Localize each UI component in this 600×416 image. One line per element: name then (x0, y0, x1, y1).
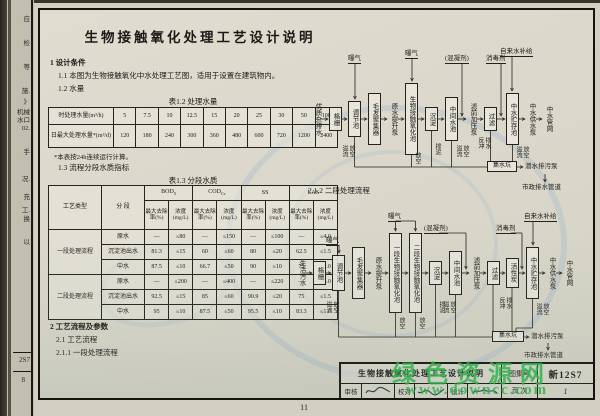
text-fragment: 机械 (17, 109, 30, 116)
tap-water-makeup-label: 自来水补给 (524, 213, 557, 222)
cell: ≤10 (265, 260, 289, 275)
cell: ≤10 (169, 260, 193, 275)
overflow-drain-label: 溢流放空 (324, 301, 338, 316)
text-fragment: 02. (22, 125, 30, 132)
photo-left-edge (0, 0, 7, 416)
stage-cell: 原水 (102, 230, 145, 245)
tap-water-makeup-label: 自来水补给 (500, 48, 533, 57)
cell: ≤150 (217, 230, 241, 245)
cell: 5 (114, 108, 136, 125)
adjacent-page-border (31, 0, 33, 416)
cell: 30 (270, 108, 292, 125)
flow-diagram-two-stage: 2.1.2 二段处理流程 (296, 185, 592, 365)
section-2-heading: 2 工艺流程及参数 (50, 322, 108, 331)
review-signature (361, 384, 394, 398)
disinfectant-label: 消毒剂 (496, 225, 516, 234)
cell: ≤20 (265, 245, 289, 260)
cell: ≤15 (169, 290, 193, 305)
flow-box-intermediate-tank: 中间水池 (449, 251, 462, 295)
table-processing-capacity: 时处理水量(m³/h) 5 7.5 10 12.5 15 20 25 30 50… (48, 107, 338, 148)
book-spine (8, 0, 11, 416)
flow-box-hair-collector: 毛发聚集器 (352, 247, 365, 299)
text-fragment: 》 (24, 99, 31, 106)
header-cell: BOD5 (145, 186, 193, 201)
cell: 85 (193, 290, 217, 305)
cell: — (193, 275, 217, 290)
cell: ≤20 (265, 290, 289, 305)
flow-box-bio-oxidation-stage1: 一段生物接触氧化池 (389, 233, 402, 313)
header-cell: 最大去除率(%) (241, 201, 265, 230)
cell: 66.7 (193, 260, 217, 275)
flow-label-supply-pump: 中水供水泵 (546, 248, 556, 298)
section-1-1-text: 1.1 本图为生物接触氧化中水处理工艺图，适用于设置在建筑物内。 (58, 71, 279, 80)
row-label: 时处理水量(m³/h) (49, 108, 114, 125)
flow-box-filter: 过滤 (487, 261, 500, 285)
flow-box-screen: 格栅 (329, 107, 342, 131)
text-fragment: 检 (24, 40, 31, 47)
backwash-label: 反冲排水 (497, 297, 511, 312)
process-type-cell: 二段处理流程 (49, 275, 102, 320)
section-1-3-heading: 1.3 流程分段水质指标 (58, 163, 129, 172)
header-cell: 最大去除率(%) (193, 201, 217, 230)
flow-label-pipe-network: 中水管网 (563, 253, 573, 293)
scanned-page-photo: 应 检 等 施. 》 机械 水口 02. 手 况. 充 工. 换 以 2S7 8… (0, 0, 600, 416)
flow-box-intermediate-tank: 中间水池 (445, 97, 458, 141)
stage-cell: 中水 (102, 260, 145, 275)
cell: ≤400 (217, 275, 241, 290)
sump-pit-box: 集水坑 (492, 331, 524, 342)
cell: — (145, 275, 169, 290)
cell: ≤15 (169, 245, 193, 260)
header-cell: 工艺类型 (49, 186, 102, 230)
review-label: 审核 (341, 384, 361, 398)
flow-box-reclaimed-storage: 中水贮存池 (506, 93, 519, 145)
scan-page-number: 11 (300, 402, 308, 412)
flow-box-regulating-tank: 调节池 (332, 255, 345, 291)
aeration-label: 曝气 (405, 50, 418, 59)
text-fragment: 施. (22, 88, 30, 95)
cell: 360 (203, 125, 225, 148)
flow-label-raw-water-pump: 原水提升泵 (372, 248, 382, 298)
text-fragment: 应 (24, 16, 31, 23)
flow-label-supply-pump: 中水供水泵 (526, 94, 536, 144)
flow-box-sedimentation: 沉淀 (429, 261, 442, 285)
cell: ≤220 (265, 275, 289, 290)
cell: ≤50 (217, 305, 241, 320)
table-row: 一段处理流程 原水 — ≤80 — ≤150 — ≤100 — ≤4.0 (49, 230, 338, 245)
sump-pit-box: 集水坑 (487, 161, 517, 172)
adjacent-titleblock-line (13, 352, 33, 353)
cell: 87.5 (145, 260, 169, 275)
flow-box-screen: 格栅 (313, 261, 326, 285)
cell: 87.5 (193, 305, 217, 320)
flow-source-label: 生活污水 (296, 245, 306, 301)
drain-label: 放空 (397, 317, 404, 329)
cell: ≤200 (169, 275, 193, 290)
cell: ≤10 (265, 305, 289, 320)
cell: 25 (248, 108, 270, 125)
text-fragment: 况. (22, 176, 30, 183)
coagulant-label: (混凝剂) (445, 55, 469, 64)
cell: 60 (193, 245, 217, 260)
header-cell: SS (241, 186, 289, 201)
table-row: 二段处理流程 原水 — ≤200 — ≤400 — ≤220 — ≤6.0 (49, 275, 338, 290)
cell: 480 (225, 125, 247, 148)
overflow-drain-label: 溢流放空 (441, 301, 455, 316)
table-header-row: 工艺类型 分 段 BOD5 CODCr SS LAS (49, 186, 338, 201)
cell: ≤60 (217, 290, 241, 305)
cell: 95 (145, 305, 169, 320)
flow-box-reclaimed-storage: 中水贮存池 (526, 247, 539, 299)
cell: ≤100 (265, 230, 289, 245)
aeration-label: 曝气 (388, 213, 401, 222)
sewage-pump-label: 潜水排污泵 (525, 163, 558, 171)
sewage-pump-label: 潜水排污泵 (531, 333, 564, 341)
cell: ≤50 (217, 260, 241, 275)
table12-footnote: *本表按24h连续运行计算。 (54, 151, 132, 161)
row-label: 日最大处理水量*(m³/d) (49, 125, 114, 148)
adjacent-page-strip: 应 检 等 施. 》 机械 水口 02. 手 况. 充 工. 换 以 2S7 8 (7, 0, 34, 416)
text-fragment: 工. (22, 207, 30, 214)
page-title: 生物接触氧化处理工艺设计说明 (50, 26, 350, 46)
table-row: 时处理水量(m³/h) 5 7.5 10 12.5 15 20 25 30 50… (49, 108, 338, 125)
cell: 300 (181, 125, 203, 148)
section-2-1-1-heading: 2.1.1 一段处理流程 (56, 348, 118, 357)
cell: — (145, 230, 169, 245)
drain-label: 放空 (417, 317, 424, 329)
drawing-sheet: 生物接触氧化处理工艺设计说明 1 设计条件 1.1 本图为生物接触氧化中水处理工… (38, 8, 595, 400)
header-cell: 浓度(mg/L) (169, 201, 193, 230)
section-1-2-heading: 1.2 水量 (58, 84, 84, 93)
stage-cell: 沉淀池出水 (102, 290, 145, 305)
process-type-cell: 一段处理流程 (49, 230, 102, 275)
backwash-label: 反冲排水 (476, 137, 490, 152)
cell: — (241, 230, 265, 245)
adjacent-page-no: 8 (22, 377, 26, 384)
section-1-heading: 1 设计条件 (50, 58, 86, 67)
cell: 20 (225, 108, 247, 125)
cell: 720 (270, 125, 292, 148)
site-watermark-url: www.downcc.com (406, 382, 548, 399)
table-row: 日最大处理水量*(m³/d) 120 180 240 300 360 480 6… (49, 125, 338, 148)
overflow-drain-label: 溢流放空 (534, 303, 548, 318)
flow-box-activated-carbon: 活性炭 (506, 258, 519, 288)
cell: 240 (158, 125, 180, 148)
header-cell: 浓度(mg/L) (265, 201, 289, 230)
flow-box-sedimentation: 沉淀 (425, 107, 438, 131)
aeration-label: 曝气 (326, 237, 339, 246)
header-cell: 最大去除率(%) (145, 201, 169, 230)
adjacent-atlas-no: 2S7 (19, 357, 30, 364)
cell: ≤60 (217, 245, 241, 260)
aeration-label: 曝气 (348, 55, 361, 64)
cell: — (193, 230, 217, 245)
flow-source-label: 优质杂排水 (312, 89, 322, 149)
cell: 81.3 (145, 245, 169, 260)
section-2-1-heading: 2.1 工艺流程 (56, 335, 97, 344)
cell: 80 (241, 245, 265, 260)
flow-label-pipe-network: 中水管网 (543, 99, 553, 139)
cell: 10 (158, 108, 180, 125)
cell: 120 (114, 125, 136, 148)
table12-caption: 表1.2 处理水量 (48, 96, 338, 107)
overflow-drain-label: 溢流放空 (454, 145, 468, 160)
text-fragment: 水口 (17, 117, 30, 124)
text-fragment: 充 (24, 194, 31, 201)
flow-box-hair-collector: 毛发聚集器 (368, 93, 381, 145)
text-fragment: 手 (24, 149, 31, 156)
cell: ≤10 (169, 305, 193, 320)
cell: 90.9 (241, 290, 265, 305)
cell: 90 (241, 260, 265, 275)
stage-cell: 沉淀池出水 (102, 245, 145, 260)
header-cell: 浓度(mg/L) (217, 201, 241, 230)
stage-cell: 原水 (102, 275, 145, 290)
overflow-drain-label: 溢流放空 (514, 146, 528, 161)
table-stage-water-quality: 工艺类型 分 段 BOD5 CODCr SS LAS 最大去除率(%) 浓度(m… (48, 185, 338, 320)
drain-label: 放空 (413, 152, 420, 164)
coagulant-label: (混凝剂) (424, 225, 448, 234)
cell: — (241, 275, 265, 290)
flow-label-raw-water-pump: 原水提升泵 (388, 94, 398, 144)
cell: 92.5 (145, 290, 169, 305)
cell: 180 (136, 125, 158, 148)
cell: 600 (248, 125, 270, 148)
flow-box-filter: 过滤 (484, 107, 497, 131)
flow-box-bio-oxidation-stage2: 二段生物接触氧化池 (409, 233, 422, 313)
header-cell: CODCr (193, 186, 241, 201)
stage-cell: 中水 (102, 305, 145, 320)
cell: 7.5 (136, 108, 158, 125)
overflow-drain-label: 溢流放空 (340, 145, 354, 160)
cell: 12.5 (181, 108, 203, 125)
photo-top-edge (0, 0, 600, 3)
flow-box-regulating-tank: 调节池 (348, 101, 361, 137)
cell: 15 (203, 108, 225, 125)
flow-box-bio-contact-oxidation: 生物接触氧化池 (405, 83, 418, 155)
flow-label-prefilter-pump: 滤前加压泵 (470, 248, 480, 298)
cell: ≤80 (169, 230, 193, 245)
adjacent-titleblock-line (13, 371, 33, 372)
text-fragment: 以 (24, 239, 31, 246)
flow-diagram-one-stage: 优质杂排水 格栅 调节池 毛发聚集器 原水提升泵 生物接触氧化池 沉淀 中间水池… (312, 47, 592, 197)
header-cell: 分 段 (102, 186, 145, 230)
sludge-label: 排泥 (433, 143, 440, 155)
text-fragment: 等 (24, 64, 31, 71)
cell: 95.5 (241, 305, 265, 320)
text-fragment: 换 (24, 216, 31, 223)
